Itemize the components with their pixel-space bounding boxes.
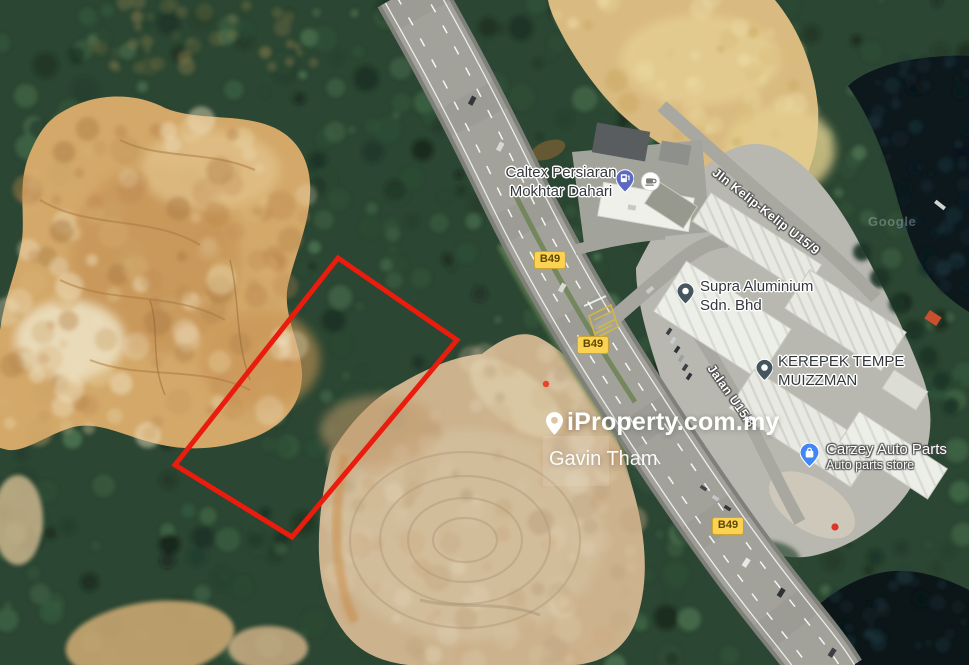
satellite-map-canvas[interactable]: Caltex Persiaran Mokhtar Dahari Supra Al… xyxy=(0,0,969,665)
poi-label-supra[interactable]: Supra Aluminium Sdn. Bhd xyxy=(700,277,813,315)
shopping-pin-icon[interactable] xyxy=(800,440,819,470)
watermark-agent: Gavin Tham xyxy=(549,448,658,471)
poi-label-caltex[interactable]: Caltex Persiaran Mokhtar Dahari xyxy=(500,163,622,201)
cleared-land-northwest xyxy=(0,96,320,450)
poi-label-carzey[interactable]: Carzey Auto Parts Auto parts store xyxy=(826,441,947,473)
watermark-brand: iProperty.com.my xyxy=(567,408,780,437)
route-badge-b49: B49 xyxy=(534,251,566,269)
cafe-icon[interactable] xyxy=(641,172,660,191)
place-pin-icon[interactable] xyxy=(677,280,694,307)
red-marker-dot xyxy=(543,381,549,387)
poi-label-kerepek[interactable]: KEREPEK TEMPE MUIZZMAN xyxy=(778,352,904,390)
fuel-pin-icon[interactable] xyxy=(616,167,634,195)
route-badge-b49: B49 xyxy=(577,336,609,354)
place-pin-icon[interactable] xyxy=(756,356,773,384)
route-badge-b49: B49 xyxy=(712,517,744,535)
map-attribution: Google xyxy=(868,214,916,229)
satellite-terrain xyxy=(0,0,969,665)
red-marker-dot xyxy=(831,523,838,530)
location-pin-icon xyxy=(546,412,563,435)
